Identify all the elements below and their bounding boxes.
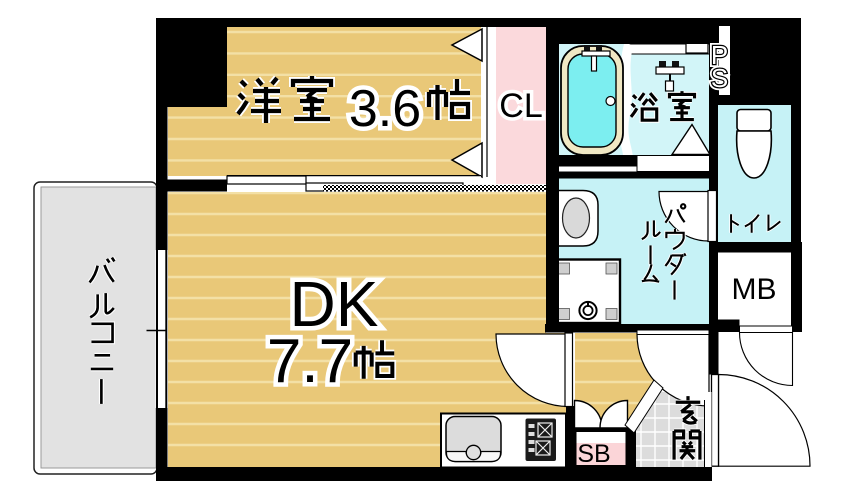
svg-text:MB: MB <box>732 273 777 306</box>
svg-text:7.7: 7.7 <box>267 327 353 396</box>
svg-text:SB: SB <box>577 440 610 468</box>
svg-text:3.6: 3.6 <box>349 80 421 138</box>
svg-text:CL: CL <box>499 87 542 125</box>
svg-text:S: S <box>711 63 728 93</box>
